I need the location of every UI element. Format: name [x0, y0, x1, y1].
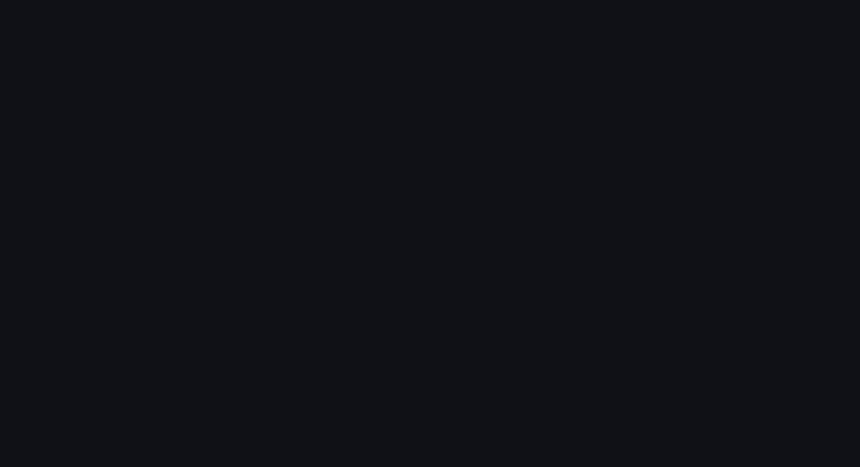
- aerial-rendering: [0, 0, 860, 467]
- scene-canvas: [0, 0, 860, 467]
